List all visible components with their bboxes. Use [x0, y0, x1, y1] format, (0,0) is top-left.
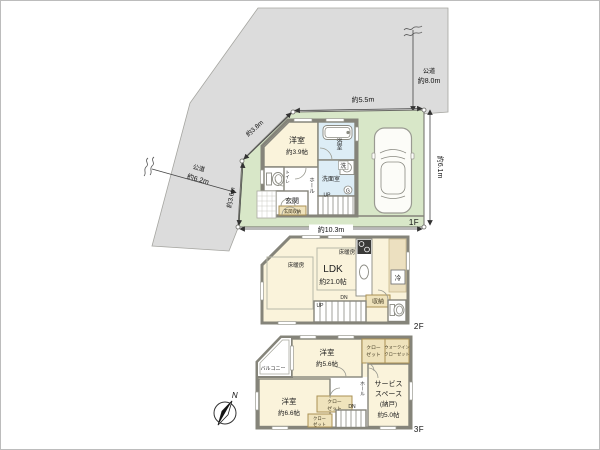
laundry-label: 洗 — [340, 162, 346, 170]
window — [272, 427, 288, 430]
western-room-label: 洋室 — [289, 135, 305, 145]
bathroom-label: 浴室 — [335, 137, 342, 150]
western-room-a-label: 洋室 — [320, 347, 335, 357]
service-space-label-4: 約5.0帖 — [377, 410, 400, 419]
floor-heating-label-a: 床暖房 — [288, 261, 305, 269]
kitchen-sink — [360, 265, 369, 279]
window — [261, 170, 264, 184]
water-heater-label: G — [346, 188, 350, 194]
window — [407, 252, 410, 270]
road-size: 約8.0m — [418, 76, 441, 85]
window — [356, 127, 359, 141]
car-icon — [372, 128, 414, 213]
toilet-icon-2f — [390, 304, 404, 316]
balcony-door — [291, 346, 294, 370]
entrance-porch — [257, 191, 276, 218]
western-room-a-size: 約5.6帖 — [316, 359, 339, 368]
car-mirror-right — [411, 153, 414, 159]
balcony-label: バルコニー — [261, 366, 286, 372]
entrance-label: 玄関 — [285, 196, 299, 205]
closet-top — [362, 339, 385, 363]
parcel-corner-marker — [422, 225, 426, 229]
floor-2: 冷 収納 DN UP — [261, 236, 425, 332]
service-space-label-2: スペース — [375, 390, 402, 398]
car-body — [375, 128, 412, 213]
stairs-dn-label-3f: DN — [348, 404, 356, 410]
toilet-tank — [267, 173, 272, 185]
window — [410, 382, 413, 400]
service-space-label-3: (納戸) — [380, 399, 397, 408]
floor-label-3f: 3F — [414, 425, 424, 434]
stairs-up-label-2f: UP — [317, 303, 325, 309]
western-room-b-label: 洋室 — [282, 396, 297, 406]
window — [261, 282, 264, 300]
window — [256, 392, 259, 410]
western-room-b-size: 約6.6帖 — [278, 408, 301, 417]
floor-label-1f: 1F — [409, 218, 419, 227]
window — [380, 427, 396, 430]
window — [326, 119, 344, 122]
parcel-corner-marker — [236, 225, 240, 229]
window — [328, 236, 342, 239]
ldk-size: 約21.0帖 — [319, 277, 347, 286]
western-room-size: 約3.9帖 — [286, 147, 309, 156]
window — [294, 119, 312, 122]
floorplan-drawing: 公道 約8.0m 公道 約6.2m — [0, 0, 600, 450]
toilet-label: トイレ — [285, 170, 291, 184]
parcel-corner-marker — [291, 110, 295, 114]
storage-label: 収納 — [372, 298, 384, 306]
stairs-up-label-1f: UP — [324, 193, 332, 199]
porch-tile-area — [257, 191, 276, 218]
window — [302, 236, 320, 239]
floor-heating-label-b: 床暖房 — [339, 248, 356, 256]
service-space-label-1: サービス — [375, 379, 403, 388]
floor-label-2f: 2F — [414, 322, 424, 331]
car-mirror-left — [372, 153, 375, 159]
closet-mid1-label-1: クロー — [327, 399, 342, 405]
hall-label-3f: ホール — [359, 381, 365, 396]
dimension-bottom: 約10.3m — [318, 225, 345, 234]
window — [278, 322, 296, 325]
fridge-label: 冷 — [395, 273, 402, 282]
closet-mid2-label-2: ゼット — [313, 421, 326, 427]
room-western-a — [292, 339, 362, 377]
ldk-label: LDK — [323, 264, 343, 275]
wic-label-2: クローゼット — [384, 351, 409, 358]
compass-north-label: N — [232, 391, 238, 400]
wic-label-1: ウォークイン — [384, 344, 409, 351]
window — [300, 336, 316, 339]
closet-mid1-label-2: ゼット — [327, 405, 342, 412]
floorplan-page: 公道 約8.0m 公道 約6.2m — [0, 0, 600, 450]
washing-machine-icon: 洗 — [339, 161, 355, 175]
parcel-corner-marker — [422, 108, 426, 112]
washroom-label: 洗面室 — [322, 175, 340, 183]
parcel-corner-marker — [240, 159, 244, 163]
closet-top-label-2: ゼット — [366, 351, 381, 358]
closet-top-label-1: クロー — [366, 345, 381, 351]
bathtub-faucet — [346, 131, 349, 134]
stairwell-1f — [318, 196, 355, 215]
stairs-dn-label-2f: DN — [340, 295, 348, 301]
dimension-right: 約6.1m — [436, 156, 445, 179]
window — [338, 336, 354, 339]
road-name: 公道 — [423, 67, 435, 75]
hall-label-1f: ホール — [308, 177, 315, 194]
water-heater-icon: G — [344, 186, 352, 194]
entrance-storage-label: 玄関収納 — [284, 208, 301, 215]
